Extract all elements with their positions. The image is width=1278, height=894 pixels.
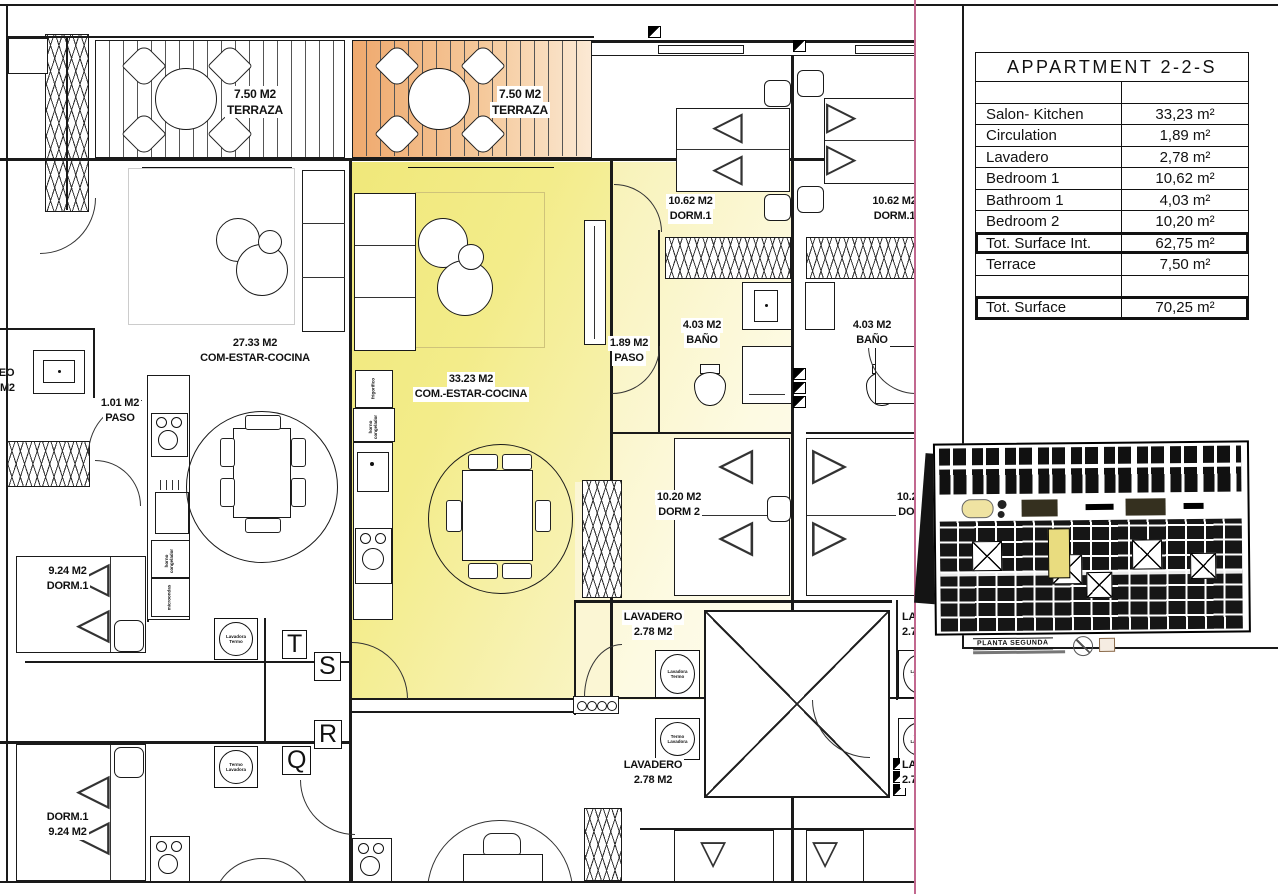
- plan-line: [160, 480, 161, 490]
- vent-tile: [793, 40, 806, 52]
- plan-line: Bedroom 2: [976, 211, 1122, 232]
- plan-line: DORM.1: [668, 209, 714, 224]
- nightstand: [797, 70, 824, 97]
- plan-line: 10.62 M2: [666, 194, 714, 209]
- plan-line: 10,20 m²: [1122, 211, 1248, 232]
- plan-line: [976, 82, 1122, 103]
- unit-letter-s: S: [314, 652, 341, 681]
- plan-line: [749, 394, 785, 395]
- room-label-terraza-left: 7.50 M2 TERRAZA: [205, 86, 305, 118]
- room-label-bano-center: 4.03 M2 BAÑO: [668, 318, 736, 348]
- chair: [220, 438, 235, 467]
- plan-line: 10.62 M2: [870, 194, 915, 209]
- table-row-total-interior: Tot. Surface Int.62,75 m²: [976, 233, 1248, 255]
- fridge-label: frigorifico: [372, 371, 377, 405]
- microwave-label: microondas: [168, 580, 173, 614]
- plan-line: COM.-ESTAR-COCINA: [413, 387, 530, 402]
- chair: [245, 415, 281, 430]
- vanity: [805, 282, 835, 330]
- plan-line: [1184, 503, 1204, 509]
- plan-line: SEO: [0, 366, 16, 381]
- closet-hatch: [6, 441, 90, 487]
- table-row: Circulation1,89 m²: [976, 125, 1248, 147]
- plan-line: 1.01 M2: [99, 396, 141, 411]
- plan-line: 4.03 M2: [681, 318, 723, 333]
- wall: [806, 432, 915, 434]
- chair: [468, 563, 498, 579]
- plan-line: 10.20 M2: [655, 490, 703, 505]
- plan-line: 2,78 m²: [1122, 147, 1248, 168]
- plan-line: [458, 244, 484, 270]
- stove-burner: [158, 854, 178, 874]
- wall: [575, 600, 892, 603]
- pillow-icon: ◁: [76, 602, 110, 646]
- plan-line: [976, 276, 1122, 297]
- plan-line: 27.33 M2: [231, 336, 279, 351]
- chair: [483, 833, 521, 855]
- plan-line: 7,50 m²: [1122, 254, 1248, 275]
- vent-tile: [793, 382, 806, 394]
- plan-line: [607, 701, 617, 711]
- sofa: [354, 193, 416, 351]
- wall: [592, 55, 915, 56]
- stairwell-x-icon: [1132, 539, 1162, 569]
- dining-table: [462, 470, 533, 561]
- plan-line: 2.78 M2: [632, 625, 674, 640]
- plan-line: [302, 223, 345, 224]
- pillow-icon: ▷: [826, 138, 857, 178]
- pillow-icon: ▷: [812, 440, 847, 486]
- plan-line: [1022, 499, 1058, 516]
- stove-burner: [156, 417, 167, 428]
- room-label-terraza-right: 7.50 M2 TERRAZA: [470, 86, 570, 118]
- door-arc: [300, 780, 355, 835]
- sheet-border-top: [0, 4, 1278, 6]
- pillow-icon: ◁: [718, 440, 753, 486]
- plan-line: [355, 245, 415, 246]
- plan-line: Lavadora Termo: [660, 654, 695, 694]
- plan-line: DORM 2: [896, 505, 915, 520]
- stove-burner: [360, 856, 380, 876]
- overview-caption-subline: [973, 650, 1065, 654]
- room-label-lavadero-right-lower: LAVADERO 2.78 M2: [900, 758, 915, 788]
- wall: [658, 230, 660, 433]
- plan-line: [178, 480, 179, 490]
- floorplan-sheet: horno congelador microondas ◁ ◁ Lavadora…: [0, 0, 1278, 894]
- room-label-lavadero-right-upper: LAVADERO 2.78 M2: [900, 610, 915, 640]
- washing-machine: Termo Lavadora: [898, 718, 915, 760]
- stove-burner: [158, 430, 178, 450]
- plan-line: Bathroom 1: [976, 190, 1122, 211]
- nightstand: [764, 80, 791, 107]
- table-row: [976, 82, 1248, 104]
- overview-pool: [962, 499, 994, 518]
- oven-label: horno congelador: [369, 410, 379, 444]
- plan-line: PASO: [103, 411, 137, 426]
- sofa: [302, 170, 345, 332]
- plan-line: [8, 38, 48, 74]
- pillow-icon: ▽: [812, 836, 838, 870]
- plan-line: Circulation: [976, 125, 1122, 146]
- room-label-dorm2-right: 10.20 M2 DORM 2: [880, 490, 915, 520]
- washing-machine: Termo Lavadora: [655, 718, 700, 760]
- armchair: [236, 244, 288, 296]
- stove-burner: [373, 843, 384, 854]
- plan-line: [1122, 82, 1248, 103]
- overview-highlighted-unit: [1048, 528, 1071, 578]
- plan-line: [355, 297, 415, 298]
- chair: [535, 500, 551, 532]
- pillow-icon: ◁: [76, 768, 110, 812]
- stairwell-x-icon: [1086, 572, 1112, 598]
- plan-line: [1126, 498, 1166, 515]
- room-label-dorm1-left-lower: DORM.1 9.24 M2: [25, 810, 110, 840]
- dining-table: [233, 428, 291, 518]
- compass-icon: [1073, 636, 1093, 656]
- wall: [93, 328, 95, 398]
- vent-strip: [573, 696, 619, 714]
- nightstand: [767, 496, 791, 522]
- plan-line: DORM.1: [45, 579, 91, 594]
- pillow-icon: ◁: [712, 106, 743, 146]
- plan-line: 70,25 m²: [1122, 297, 1248, 319]
- stove-burner: [171, 841, 182, 852]
- plan-line: [594, 226, 595, 339]
- floor-overview-plan: PLANTA SEGUNDA: [931, 438, 1257, 653]
- closet-hatch: [665, 237, 791, 279]
- room-label-dorm2-center: 10.20 M2 DORM 2: [640, 490, 718, 520]
- nightstand: [764, 194, 791, 221]
- plan-line: [855, 45, 915, 54]
- stove-burner: [171, 417, 182, 428]
- plan-line: [258, 230, 282, 254]
- stove-burner: [375, 533, 386, 544]
- plan-line: 10,62 m²: [1122, 168, 1248, 189]
- shower: [742, 346, 792, 404]
- nightstand: [114, 620, 144, 652]
- plan-line: TERRAZA: [490, 102, 550, 118]
- oven-label: horno congelador: [165, 544, 175, 578]
- room-label-lavadero-center-upper: LAVADERO 2.78 M2: [608, 610, 698, 640]
- plan-border-bottom: [0, 881, 916, 883]
- plan-line: Termo Lavadora: [660, 722, 695, 756]
- plan-line: PASO: [612, 351, 646, 366]
- plan-line: TERRAZA: [225, 102, 285, 118]
- wall: [264, 618, 266, 743]
- washing-machine: Termo Lavadora: [214, 746, 258, 788]
- wall: [0, 328, 95, 330]
- plan-line: [1122, 276, 1248, 297]
- plan-line: [765, 304, 768, 307]
- chair: [245, 518, 281, 533]
- room-label-paso-center: 1.89 M2 PASO: [598, 336, 660, 366]
- chair: [502, 563, 532, 579]
- pillow-icon: ▷: [826, 96, 857, 136]
- plan-line: [166, 480, 167, 490]
- area-table: APPARTMENT 2-2-S Salon- Kitchen33,23 m² …: [975, 52, 1249, 320]
- plan-line: COM-ESTAR-COCINA: [198, 351, 312, 366]
- plan-line: 1.89 M2: [608, 336, 650, 351]
- terrace-table: [408, 68, 470, 130]
- pillow-icon: ▷: [812, 512, 847, 558]
- plan-line: DORM.1: [45, 810, 91, 825]
- sink: [357, 452, 389, 492]
- plan-line: BAÑO: [854, 333, 890, 348]
- vent-tile: [648, 26, 661, 38]
- pillow-icon: ◁: [718, 512, 753, 558]
- door-arc: [95, 460, 141, 506]
- wall: [610, 432, 792, 434]
- room-label-salon-center: 33.23 M2 COM.-ESTAR-COCINA: [392, 372, 550, 402]
- plan-line: [58, 370, 61, 373]
- plan-line: DORM 2: [656, 505, 702, 520]
- wall: [25, 661, 350, 663]
- plan-line: Terrace: [976, 254, 1122, 275]
- plan-line: Salon- Kitchen: [976, 104, 1122, 125]
- room-label-salon-left: 27.33 M2 COM-ESTAR-COCINA: [180, 336, 330, 366]
- plan-line: [110, 557, 111, 652]
- plan-line: LAVADERO: [900, 758, 915, 773]
- unit-letter-r: R: [314, 720, 342, 749]
- vent-tile: [793, 396, 806, 408]
- table-row: Bathroom 14,03 m²: [976, 190, 1248, 212]
- room-label-dorm1-right: 10.62 M2 DORM.1: [852, 194, 915, 224]
- dining-table: [463, 854, 543, 882]
- table-row: Bedroom 210,20 m²: [976, 211, 1248, 233]
- room-label-bano-right: 4.03 M2 BAÑO: [838, 318, 906, 348]
- unit-letter-t: T: [282, 630, 307, 659]
- north-marker: [1099, 638, 1115, 652]
- table-row: [976, 276, 1248, 298]
- wall: [349, 160, 352, 883]
- plan-line: 10.20 M2: [895, 490, 915, 505]
- vent-tile: [793, 368, 806, 380]
- door-arc: [40, 198, 96, 254]
- stove-burner: [358, 843, 369, 854]
- plan-line: 9.24 M2: [46, 564, 88, 579]
- area-table-title: APPARTMENT 2-2-S: [976, 53, 1248, 82]
- plan-line: 4.03 M2: [851, 318, 893, 333]
- stairwell-x-icon: [972, 541, 1002, 571]
- plan-line: LAVADERO: [900, 610, 915, 625]
- nightstand: [114, 747, 144, 778]
- chair: [446, 500, 462, 532]
- stairwell-x-icon: [1190, 553, 1216, 579]
- plan-line: 62,75 m²: [1122, 233, 1248, 254]
- plan-line: 2.78 M2: [900, 773, 915, 788]
- plan-line: [577, 701, 587, 711]
- washing-machine: Lavadora Termo: [898, 650, 915, 698]
- chair: [502, 454, 532, 470]
- overview-top-units: [939, 445, 1241, 494]
- plan-line: [1086, 504, 1114, 510]
- room-label-paso-left: 1.01 M2 PASO: [85, 396, 155, 426]
- door-arc: [212, 858, 314, 883]
- chair: [291, 478, 306, 507]
- plan-line: BAÑO: [684, 333, 720, 348]
- plan-line: [172, 480, 173, 490]
- plan-line: [110, 745, 111, 880]
- plan-line: [370, 462, 374, 466]
- plan-line: [998, 511, 1005, 518]
- plan-line: 4,03 m²: [1122, 190, 1248, 211]
- plan-line: 9.24 M2: [46, 825, 88, 840]
- main-floorplan: horno congelador microondas ◁ ◁ Lavadora…: [0, 0, 915, 883]
- plan-line: 33.23 M2: [447, 372, 495, 387]
- plan-line: LAVADERO: [622, 610, 685, 625]
- plan-line: [998, 500, 1007, 509]
- plan-line: [658, 45, 744, 54]
- washing-machine: Lavadora Termo: [214, 618, 258, 660]
- plan-line: Tot. Surface: [976, 297, 1122, 319]
- plan-line: Bedroom 1: [976, 168, 1122, 189]
- plan-line: 1,89 m²: [1122, 125, 1248, 146]
- plan-line: [66, 36, 68, 210]
- plan-line: Tot. Surface Int.: [976, 233, 1122, 254]
- stove-burner: [156, 841, 167, 852]
- chair: [468, 454, 498, 470]
- plan-line: [587, 701, 597, 711]
- closet-hatch: [806, 237, 915, 279]
- pillow-icon: ▽: [700, 836, 726, 870]
- pillow-icon: ◁: [712, 148, 743, 188]
- room-label-lavadero-center-lower: LAVADERO 2.78 M2: [608, 758, 698, 788]
- closet-hatch: [582, 480, 622, 598]
- stove-burner: [362, 548, 384, 570]
- plan-line: 2.78 M2: [632, 773, 674, 788]
- wall: [592, 40, 915, 43]
- chair: [291, 438, 306, 467]
- plan-line: Lavadora Termo: [219, 622, 253, 656]
- room-label-dorm1-left-upper: 9.24 M2 DORM.1: [25, 564, 110, 594]
- room-label-dorm1-center: 10.62 M2 DORM.1: [648, 194, 733, 224]
- overview-caption: PLANTA SEGUNDA: [973, 637, 1053, 650]
- table-row: Bedroom 110,62 m²: [976, 168, 1248, 190]
- table-row: Salon- Kitchen33,23 m²: [976, 104, 1248, 126]
- sink: [155, 492, 189, 534]
- closet-hatch: [584, 808, 622, 881]
- table-row: Terrace7,50 m²: [976, 254, 1248, 276]
- wall: [8, 36, 594, 38]
- plan-line: Termo Lavadora: [219, 750, 253, 784]
- plan-line: [302, 277, 345, 278]
- plan-line: DORM.1: [872, 209, 915, 224]
- plan-line: 33,23 m²: [1122, 104, 1248, 125]
- plan-line: [933, 440, 1251, 635]
- table-row-total: Tot. Surface70,25 m²: [976, 297, 1248, 319]
- unit-letter-q: Q: [282, 746, 311, 775]
- plan-line: LAVADERO: [622, 758, 685, 773]
- sheet-cut-line: [914, 0, 916, 894]
- stove-burner: [360, 533, 371, 544]
- plan-line: Lavadero: [976, 147, 1122, 168]
- plan-line: 1 M2: [0, 381, 17, 396]
- plan-line: 7.50 M2: [232, 86, 278, 102]
- chair: [220, 478, 235, 507]
- nightstand: [797, 186, 824, 213]
- plan-line: 2.78 M2: [900, 625, 915, 640]
- washing-machine: Lavadora Termo: [655, 650, 700, 698]
- sheet-border-left: [6, 4, 8, 883]
- plan-line: [597, 701, 607, 711]
- plan-line: 7.50 M2: [497, 86, 543, 102]
- table-row: Lavadero2,78 m²: [976, 147, 1248, 169]
